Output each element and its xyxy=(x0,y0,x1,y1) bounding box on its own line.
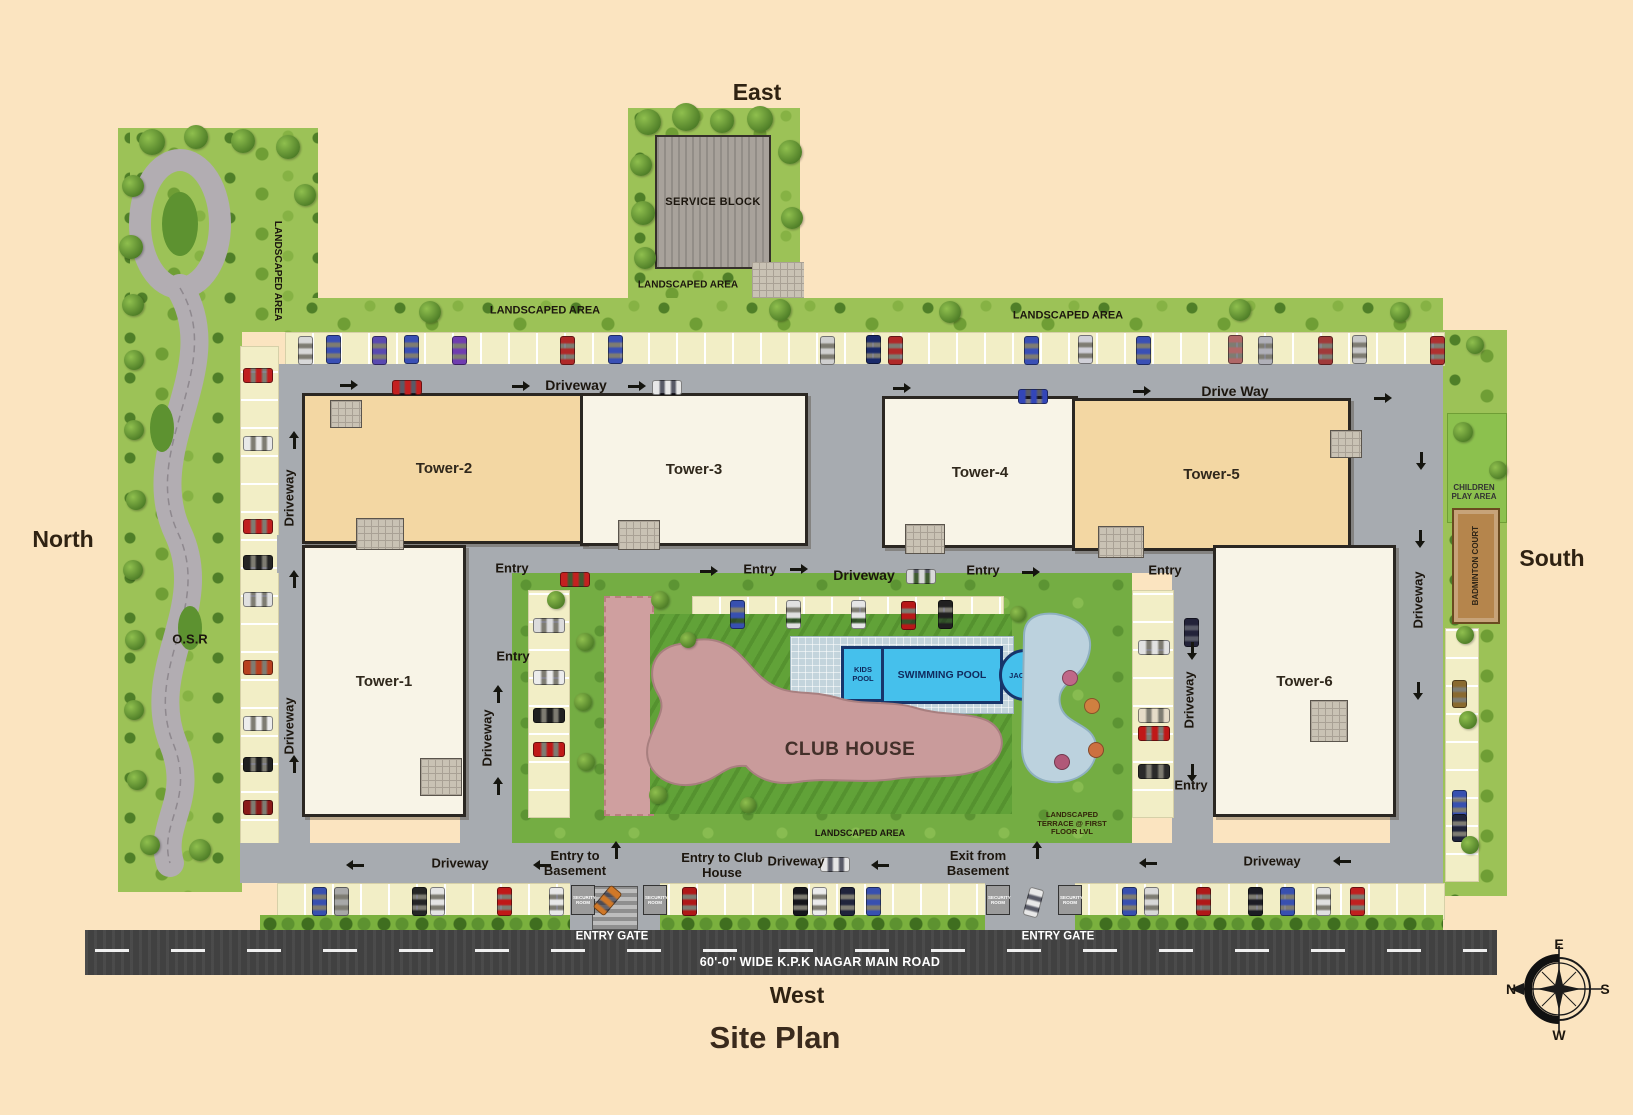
traffic-arrow-icon xyxy=(293,577,296,588)
car-icon xyxy=(1350,887,1365,916)
entry-gate-label: ENTRY GATE xyxy=(1022,930,1095,943)
driveway-label: Driveway xyxy=(1243,855,1300,870)
driveway-label: Driveway xyxy=(481,709,496,766)
driveway-label: Driveway xyxy=(431,857,488,872)
traffic-arrow-icon xyxy=(1133,390,1144,393)
landscaped-area-label: LANDSCAPED AREA xyxy=(490,305,600,318)
car-icon xyxy=(1280,887,1295,916)
tower5-connector-driveway xyxy=(1345,398,1390,538)
compass-w: W xyxy=(1552,1027,1565,1043)
paved-patio xyxy=(618,520,660,550)
security-room-label: SECURITY ROOM xyxy=(573,895,593,905)
entry-label: Entry xyxy=(1148,564,1181,579)
tree-icon xyxy=(680,632,696,648)
car-icon xyxy=(452,336,467,365)
car-icon xyxy=(533,618,565,633)
car-icon xyxy=(938,600,953,629)
car-icon xyxy=(1228,335,1243,364)
direction-west: West xyxy=(770,982,825,1008)
tree-icon xyxy=(122,175,144,197)
tree-icon xyxy=(781,207,803,229)
tree-icon xyxy=(189,839,211,861)
car-icon xyxy=(533,670,565,685)
car-icon xyxy=(326,335,341,364)
landscaped-terrace-label: LANDSCAPED TERRACE @ FIRST FLOOR LVL xyxy=(1031,811,1113,837)
exit-from-basement-label: Exit from Basement xyxy=(936,849,1020,879)
tree-icon xyxy=(124,350,144,370)
tower34-connector-driveway xyxy=(802,398,882,538)
children-play-area-label: CHILDREN PLAY AREA xyxy=(1446,483,1502,501)
traffic-arrow-icon xyxy=(293,438,296,449)
tree-icon xyxy=(747,106,773,132)
tower-3-label: Tower-3 xyxy=(666,461,722,478)
driveway-label: Driveway xyxy=(283,469,298,526)
entry-label: Entry xyxy=(743,563,776,578)
terrace-tile-pond xyxy=(1012,596,1130,816)
tree-icon xyxy=(276,135,300,159)
traffic-arrow-icon xyxy=(1191,642,1194,653)
paved-patio xyxy=(330,400,362,428)
tree-icon xyxy=(294,184,316,206)
tree-icon xyxy=(1489,461,1507,479)
traffic-arrow-icon xyxy=(353,864,364,867)
tree-icon xyxy=(635,109,661,135)
tree-icon xyxy=(634,247,656,269)
club-house-building xyxy=(628,626,1020,818)
tree-icon xyxy=(123,560,143,580)
tree-icon xyxy=(631,201,655,225)
tree-icon xyxy=(127,770,147,790)
compass-s: S xyxy=(1600,981,1609,997)
car-icon xyxy=(793,887,808,916)
tower-5-label: Tower-5 xyxy=(1183,466,1239,483)
tower6-parking-column xyxy=(1132,590,1174,818)
car-icon xyxy=(652,380,682,395)
car-icon xyxy=(682,887,697,916)
driveway-label: Driveway xyxy=(1183,671,1198,728)
paved-patio xyxy=(1310,700,1348,742)
car-icon xyxy=(1352,335,1367,364)
tree-icon xyxy=(184,125,208,149)
landscaped-area-label: LANDSCAPED AREA xyxy=(815,828,905,838)
traffic-arrow-icon xyxy=(497,692,500,703)
car-icon xyxy=(1318,336,1333,365)
tower-6-label: Tower-6 xyxy=(1276,673,1332,690)
traffic-arrow-icon xyxy=(1340,860,1351,863)
driveway-label: Driveway xyxy=(283,697,298,754)
tree-icon xyxy=(140,835,160,855)
tree-icon xyxy=(124,420,144,440)
car-icon xyxy=(404,335,419,364)
tree-icon xyxy=(419,301,441,323)
tree-icon xyxy=(649,786,667,804)
terrace-table-icon xyxy=(1084,698,1100,714)
car-icon xyxy=(1138,708,1170,723)
driveway-label: Driveway xyxy=(1412,571,1427,628)
top-landscaped-strip xyxy=(300,298,1443,334)
security-room-label: SECURITY ROOM xyxy=(988,895,1008,905)
landscaped-area-label: LANDSCAPED AREA xyxy=(1013,310,1123,323)
car-icon xyxy=(866,335,881,364)
tree-icon xyxy=(939,301,961,323)
car-icon xyxy=(1078,335,1093,364)
traffic-arrow-icon xyxy=(1191,764,1194,775)
club-house-label: CLUB HOUSE xyxy=(785,739,916,761)
tree-icon xyxy=(122,294,144,316)
car-icon xyxy=(243,368,273,383)
car-icon xyxy=(298,336,313,365)
paved-patio xyxy=(905,524,945,554)
traffic-arrow-icon xyxy=(340,384,351,387)
security-room-4: SECURITY ROOM xyxy=(1058,885,1082,915)
traffic-arrow-icon xyxy=(628,385,639,388)
landscaped-area-label: LANDSCAPED AREA xyxy=(271,221,283,321)
traffic-arrow-icon xyxy=(497,784,500,795)
traffic-arrow-icon xyxy=(293,762,296,773)
traffic-arrow-icon xyxy=(790,568,801,571)
car-icon xyxy=(1122,887,1137,916)
security-room-2: SECURITY ROOM xyxy=(643,885,667,915)
car-icon xyxy=(866,887,881,916)
entry-gate-label: ENTRY GATE xyxy=(576,930,649,943)
traffic-arrow-icon xyxy=(1022,571,1033,574)
entry-to-basement-label: Entry to Basement xyxy=(535,849,615,879)
tree-icon xyxy=(231,129,255,153)
tree-icon xyxy=(740,797,756,813)
traffic-arrow-icon xyxy=(1374,397,1385,400)
car-icon xyxy=(243,716,273,731)
security-room-label: SECURITY ROOM xyxy=(645,895,665,905)
traffic-arrow-icon xyxy=(512,385,523,388)
tree-icon xyxy=(1453,422,1473,442)
security-room-label: SECURITY ROOM xyxy=(1060,895,1080,905)
entry-label: Entry xyxy=(1174,779,1207,794)
car-icon xyxy=(412,887,427,916)
tree-icon xyxy=(547,591,565,609)
car-icon xyxy=(1248,887,1263,916)
tower-4-label: Tower-4 xyxy=(952,464,1008,481)
security-room-3: SECURITY ROOM xyxy=(986,885,1010,915)
tree-icon xyxy=(1229,299,1251,321)
landscaped-area-label: LANDSCAPED AREA xyxy=(638,279,738,291)
car-icon xyxy=(1138,640,1170,655)
car-icon xyxy=(730,600,745,629)
car-icon xyxy=(312,887,327,916)
tree-icon xyxy=(710,109,734,133)
car-icon xyxy=(608,335,623,364)
osr-label: O.S.R xyxy=(172,633,207,648)
terrace-table-icon xyxy=(1062,670,1078,686)
tree-icon xyxy=(574,693,592,711)
car-icon xyxy=(392,380,422,395)
tree-icon xyxy=(126,490,146,510)
tree-icon xyxy=(1390,302,1410,322)
tower-1-label: Tower-1 xyxy=(356,673,412,690)
traffic-arrow-icon xyxy=(1420,452,1423,463)
car-icon xyxy=(430,887,445,916)
driveway-label: Driveway xyxy=(833,567,894,583)
car-icon xyxy=(1136,336,1151,365)
car-icon xyxy=(243,757,273,772)
tree-icon xyxy=(1010,606,1026,622)
traffic-arrow-icon xyxy=(893,387,904,390)
traffic-arrow-icon xyxy=(1419,530,1422,541)
service-block-building: SERVICE BLOCK xyxy=(655,135,771,269)
car-icon xyxy=(1430,336,1445,365)
car-icon xyxy=(820,336,835,365)
badminton-court-label: BADMINTON COURT xyxy=(1471,526,1480,605)
car-icon xyxy=(812,887,827,916)
main-road-label: 60'-0'' WIDE K.P.K NAGAR MAIN ROAD xyxy=(700,955,940,969)
car-icon xyxy=(243,800,273,815)
car-icon xyxy=(243,436,273,451)
paved-patio xyxy=(1330,430,1362,458)
service-block-label: SERVICE BLOCK xyxy=(665,196,760,209)
car-icon xyxy=(243,592,273,607)
direction-south: South xyxy=(1519,545,1584,571)
tree-icon xyxy=(672,103,700,131)
tree-icon xyxy=(1461,836,1479,854)
entry-label: Entry xyxy=(495,562,528,577)
car-icon xyxy=(1144,887,1159,916)
driveway-label: Driveway xyxy=(767,855,824,870)
traffic-arrow-icon xyxy=(1146,862,1157,865)
direction-north: North xyxy=(32,526,93,552)
paved-patio xyxy=(420,758,462,796)
car-icon xyxy=(533,708,565,723)
site-plan-canvas: SERVICE BLOCK KIDS POOL SWIMMING POOL JA… xyxy=(0,0,1633,1115)
paved-patio xyxy=(1098,526,1144,558)
tree-icon xyxy=(630,154,652,176)
car-icon xyxy=(851,600,866,629)
driveway-label: Drive Way xyxy=(1201,383,1268,399)
traffic-arrow-icon xyxy=(1036,848,1039,859)
traffic-arrow-icon xyxy=(878,864,889,867)
car-icon xyxy=(1138,726,1170,741)
tree-icon xyxy=(769,299,791,321)
compass-n: N xyxy=(1506,981,1516,997)
traffic-arrow-icon xyxy=(1417,682,1420,693)
traffic-arrow-icon xyxy=(615,848,618,859)
direction-east: East xyxy=(733,79,782,105)
car-icon xyxy=(1196,887,1211,916)
car-icon xyxy=(1258,336,1273,365)
car-icon xyxy=(533,742,565,757)
car-icon xyxy=(497,887,512,916)
tree-icon xyxy=(778,140,802,164)
tree-icon xyxy=(651,591,669,609)
car-icon xyxy=(560,336,575,365)
car-icon xyxy=(243,555,273,570)
car-icon xyxy=(1024,336,1039,365)
traffic-arrow-icon xyxy=(700,570,711,573)
tower-2-label: Tower-2 xyxy=(416,460,472,477)
tree-icon xyxy=(124,700,144,720)
tree-icon xyxy=(1459,711,1477,729)
car-icon xyxy=(888,336,903,365)
car-icon xyxy=(243,660,273,675)
car-icon xyxy=(901,601,916,630)
car-icon xyxy=(1452,680,1467,708)
terrace-table-icon xyxy=(1088,742,1104,758)
tree-icon xyxy=(577,753,595,771)
car-icon xyxy=(840,887,855,916)
car-icon xyxy=(786,600,801,629)
terrace-table-icon xyxy=(1054,754,1070,770)
security-room-1: SECURITY ROOM xyxy=(571,885,595,915)
tree-icon xyxy=(1456,626,1474,644)
car-icon xyxy=(549,887,564,916)
car-icon xyxy=(560,572,590,587)
entry-label: Entry xyxy=(496,650,529,665)
paved-patio xyxy=(356,518,404,550)
car-icon xyxy=(1316,887,1331,916)
driveway-label: Driveway xyxy=(545,377,606,393)
compass-e: E xyxy=(1554,936,1563,952)
tower-6: Tower-6 xyxy=(1213,545,1396,817)
car-icon xyxy=(334,887,349,916)
road-center-line xyxy=(95,949,1487,952)
car-icon xyxy=(906,569,936,584)
tree-icon xyxy=(576,633,594,651)
entry-label: Entry xyxy=(966,564,999,579)
car-icon xyxy=(243,519,273,534)
tree-icon xyxy=(139,129,165,155)
tower-3: Tower-3 xyxy=(580,393,808,546)
car-icon xyxy=(372,336,387,365)
tree-icon xyxy=(125,630,145,650)
badminton-court: BADMINTON COURT xyxy=(1452,508,1500,624)
car-icon xyxy=(1138,764,1170,779)
tree-icon xyxy=(1466,336,1484,354)
inner-left-driveway xyxy=(460,573,512,843)
tree-icon xyxy=(119,235,143,259)
page-title: Site Plan xyxy=(710,1020,841,1056)
car-icon xyxy=(1018,389,1048,404)
entry-to-club-house-label: Entry to Club House xyxy=(680,851,764,881)
